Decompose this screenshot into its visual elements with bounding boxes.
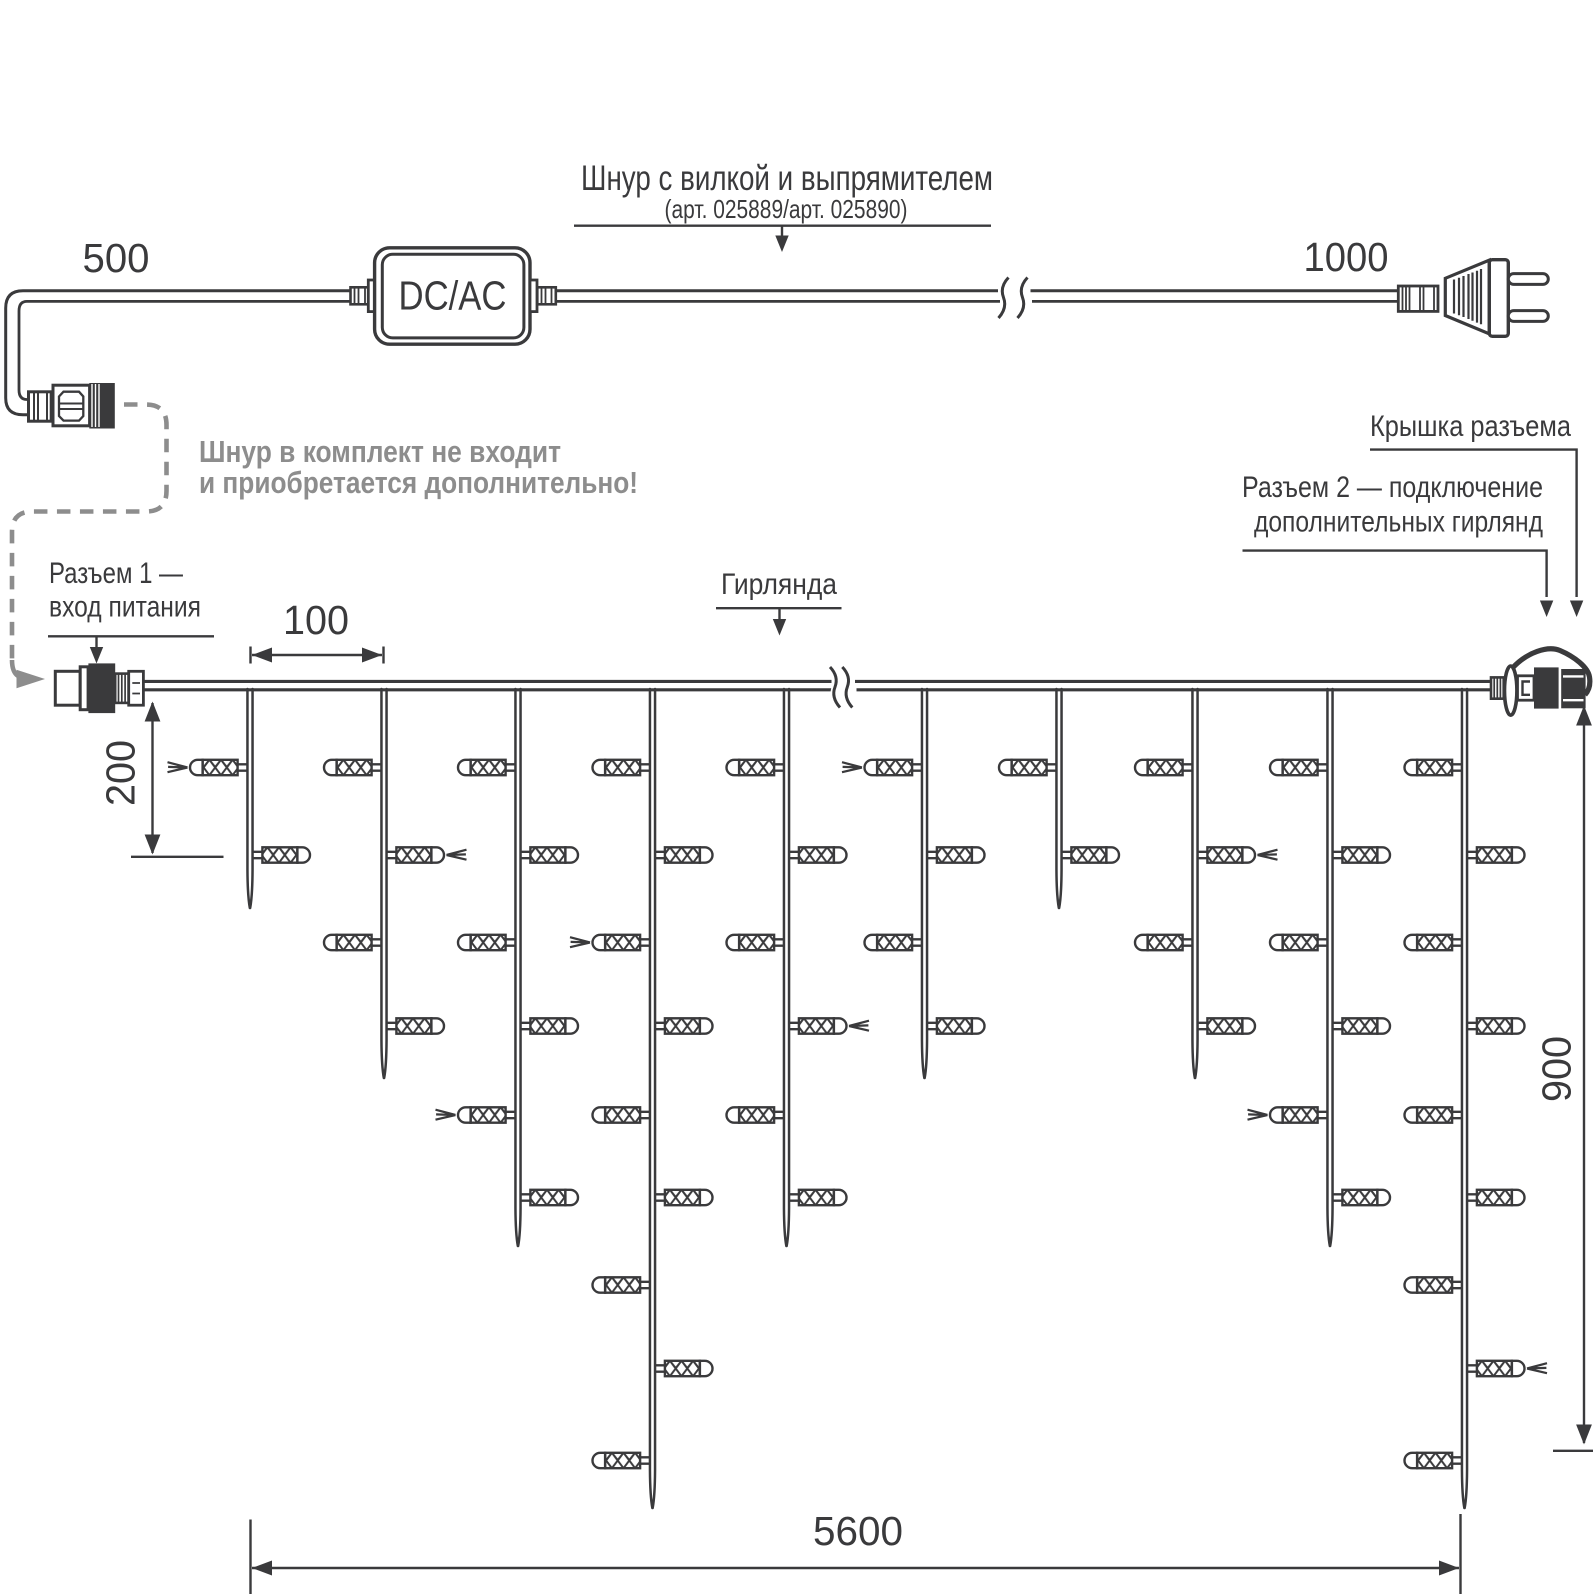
svg-text:и приобретается дополнительно!: и приобретается дополнительно! — [199, 465, 638, 500]
svg-text:дополнительных гирлянд: дополнительных гирлянд — [1254, 506, 1543, 539]
svg-text:900: 900 — [1534, 1036, 1580, 1102]
svg-text:500: 500 — [83, 235, 150, 281]
svg-text:Крышка разъема: Крышка разъема — [1370, 410, 1571, 443]
svg-text:100: 100 — [283, 597, 349, 643]
svg-text:DC/AC: DC/AC — [399, 273, 507, 319]
svg-text:вход питания: вход питания — [49, 591, 201, 624]
svg-text:200: 200 — [98, 740, 144, 806]
svg-text:1000: 1000 — [1304, 234, 1389, 280]
svg-text:Шнур с вилкой и выпрямителем: Шнур с вилкой и выпрямителем — [581, 159, 993, 198]
svg-text:Шнур в комплект не входит: Шнур в комплект не входит — [199, 434, 561, 469]
svg-text:Разъем 1 —: Разъем 1 — — [49, 557, 183, 590]
svg-text:Гирлянда: Гирлянда — [721, 568, 837, 601]
svg-text:Разъем 2 — подключение: Разъем 2 — подключение — [1242, 471, 1543, 504]
svg-text:(арт. 025889/арт. 025890): (арт. 025889/арт. 025890) — [665, 194, 908, 224]
svg-text:5600: 5600 — [813, 1508, 903, 1554]
